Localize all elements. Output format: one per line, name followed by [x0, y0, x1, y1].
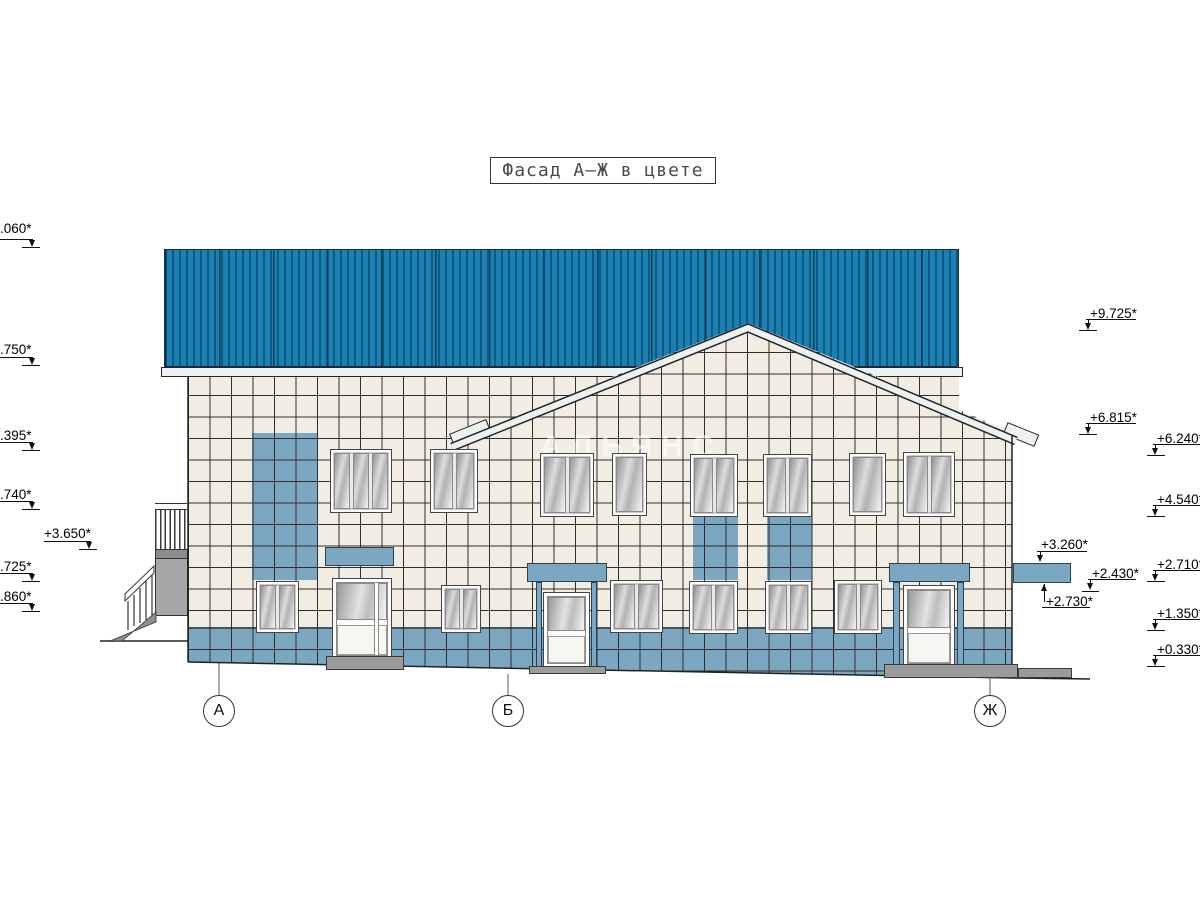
entrance-door: [903, 585, 955, 668]
window-pane: [260, 585, 276, 629]
level-mark-value: .740*: [0, 487, 32, 502]
level-tick-line: [22, 611, 40, 612]
level-arrow-down-icon: [29, 358, 35, 365]
canopy-sign-board: [889, 563, 970, 582]
level-tick-line: [22, 365, 40, 366]
window-pane: [372, 453, 388, 509]
door-glass: [337, 583, 387, 620]
level-leader-line: [1153, 570, 1200, 571]
window-pane: [694, 458, 713, 513]
door-pilaster: [536, 582, 542, 668]
level-arrow-down-icon: [1152, 574, 1158, 581]
window-pane: [445, 589, 460, 629]
window-pane: [853, 457, 882, 512]
window-pane: [860, 584, 879, 630]
axis-bubble: Б: [492, 695, 524, 727]
level-mark-value: .725*: [0, 559, 32, 574]
door-pilaster: [893, 582, 900, 668]
door-panel: [548, 636, 585, 663]
door-panel: [908, 633, 950, 663]
window-pane: [638, 584, 659, 629]
window-upper: [690, 454, 738, 517]
level-mark-value: .060*: [0, 221, 32, 236]
axis-bubble: Ж: [974, 695, 1006, 727]
window-pane: [931, 456, 952, 513]
level-mark-value: +3.650*: [44, 526, 91, 541]
door-pilaster: [591, 582, 597, 668]
level-tick-line: [1079, 330, 1097, 331]
door-panel: [337, 625, 387, 655]
window-upper: [430, 449, 478, 513]
level-leader-line: [1153, 444, 1200, 445]
level-tick-line: [22, 509, 40, 510]
window-upper: [330, 449, 392, 513]
level-arrow-down-icon: [1037, 555, 1043, 562]
level-arrow-down-icon: [29, 443, 35, 450]
level-mark-value: .395*: [0, 428, 32, 443]
window-lower: [689, 581, 738, 634]
level-arrow-down-icon: [1085, 323, 1091, 330]
window-pane: [463, 589, 478, 629]
level-tick-line: [22, 581, 40, 582]
level-arrow-down-icon: [29, 240, 35, 247]
window-upper: [540, 453, 594, 517]
window-pane: [907, 456, 928, 513]
door-mullion: [374, 583, 379, 655]
level-tick-line: [1147, 516, 1165, 517]
window-upper: [763, 454, 812, 517]
entrance-door: [332, 578, 392, 660]
level-leader-line: [1153, 619, 1200, 620]
level-arrow-down-icon: [1152, 623, 1158, 630]
level-arrow-down-icon: [29, 574, 35, 581]
level-mark-value: .860*: [0, 589, 32, 604]
window-pane: [769, 585, 787, 630]
window-pane: [789, 458, 808, 513]
level-leader-line: [1037, 551, 1087, 552]
canopy-sign-board: [1013, 563, 1071, 583]
concrete-step: [884, 664, 1018, 678]
window-lower: [441, 585, 481, 633]
window-pane: [715, 585, 734, 630]
window-lower: [256, 581, 299, 633]
window-pane: [544, 457, 566, 513]
level-tick-line: [79, 549, 97, 550]
window-upper: [849, 453, 886, 516]
window-upper: [612, 453, 647, 516]
level-tick-line: [1082, 591, 1099, 592]
window-pane: [279, 585, 295, 629]
level-tick-line: [1147, 581, 1165, 582]
level-arrow-down-icon: [29, 502, 35, 509]
canopy-sign-board: [325, 547, 394, 566]
level-tick-line: [1147, 455, 1165, 456]
window-pane: [569, 457, 591, 513]
window-pane: [614, 584, 635, 629]
level-arrow-down-icon: [1152, 448, 1158, 455]
window-upper: [903, 452, 955, 517]
level-arrow-down-icon: [1087, 583, 1093, 590]
window-pane: [334, 453, 350, 509]
level-arrow-down-icon: [1152, 659, 1158, 666]
level-arrow-up-icon: [1041, 584, 1047, 591]
level-arrow-down-icon: [1085, 427, 1091, 434]
window-pane: [767, 458, 786, 513]
concrete-step: [1018, 668, 1072, 678]
axis-bubble: А: [203, 695, 235, 727]
window-pane: [616, 457, 643, 512]
concrete-step: [529, 666, 606, 674]
level-leader-line: [1086, 319, 1136, 320]
facade-drawing-canvas: АЛЬЯНС .060*.750*.395*.740*+3.650*.725*.…: [0, 0, 1200, 900]
window-pane: [456, 453, 475, 509]
door-pilaster: [957, 582, 964, 668]
level-arrow-down-icon: [1152, 509, 1158, 516]
level-arrow-down-icon: [29, 604, 35, 611]
level-tick-line: [1147, 630, 1165, 631]
level-leader-line: [1042, 607, 1090, 608]
concrete-step: [326, 656, 404, 670]
window-pane: [693, 585, 712, 630]
door-glass: [548, 597, 585, 631]
level-leader-line: [1153, 655, 1200, 656]
window-lower: [765, 581, 812, 634]
level-tick-line: [22, 247, 40, 248]
level-arrow-down-icon: [86, 542, 92, 549]
level-mark-value: .750*: [0, 342, 32, 357]
window-lower: [834, 580, 882, 634]
level-tick-line: [22, 450, 40, 451]
level-tick-line: [1147, 666, 1165, 667]
facade-elements-layer: .060*.750*.395*.740*+3.650*.725*.860*+9.…: [0, 0, 1200, 900]
level-leader-line: [1088, 579, 1136, 580]
window-pane: [434, 453, 453, 509]
entrance-door: [543, 592, 590, 668]
level-leader-line: [44, 541, 91, 542]
level-mark-value: +3.260*: [1041, 537, 1088, 552]
window-pane: [790, 585, 808, 630]
level-leader-line: [1086, 423, 1136, 424]
level-leader-line: [1153, 505, 1200, 506]
window-pane: [353, 453, 369, 509]
window-pane: [838, 584, 857, 630]
window-pane: [716, 458, 735, 513]
canopy-sign-board: [527, 563, 607, 582]
window-lower: [610, 580, 663, 633]
door-glass: [908, 590, 950, 628]
level-tick-line: [1079, 434, 1097, 435]
